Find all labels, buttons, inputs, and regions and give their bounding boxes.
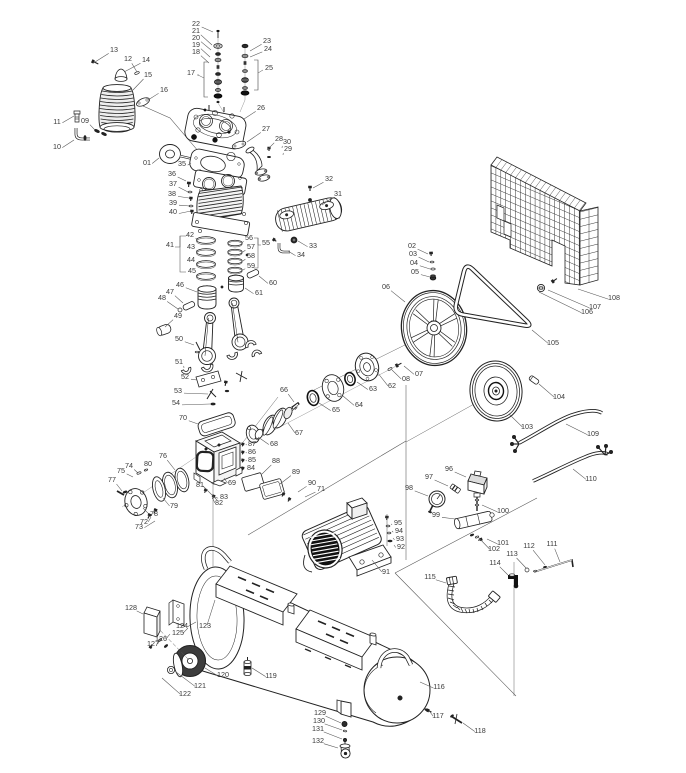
svg-text:116: 116 (433, 682, 444, 691)
svg-text:92: 92 (397, 542, 405, 551)
svg-text:36: 36 (168, 169, 176, 178)
svg-text:63: 63 (369, 384, 377, 393)
svg-text:54: 54 (172, 398, 180, 407)
svg-text:100: 100 (497, 506, 509, 515)
svg-text:56: 56 (245, 233, 253, 242)
svg-text:62: 62 (388, 381, 396, 390)
svg-text:16: 16 (160, 85, 168, 94)
svg-text:59: 59 (247, 261, 255, 270)
svg-text:08: 08 (402, 374, 410, 383)
svg-text:17: 17 (187, 68, 195, 77)
svg-text:06: 06 (382, 282, 390, 291)
svg-text:99: 99 (432, 510, 440, 519)
svg-text:07: 07 (415, 369, 423, 378)
svg-text:105: 105 (547, 338, 559, 347)
svg-text:119: 119 (265, 671, 276, 680)
svg-text:121: 121 (194, 681, 206, 690)
svg-text:127: 127 (147, 639, 159, 648)
svg-text:69: 69 (228, 478, 236, 487)
svg-text:18: 18 (192, 47, 200, 56)
svg-text:79: 79 (170, 501, 178, 510)
svg-text:114: 114 (489, 558, 500, 567)
svg-text:13: 13 (110, 45, 118, 54)
svg-text:90: 90 (308, 478, 316, 487)
svg-text:117: 117 (432, 711, 443, 720)
svg-text:102: 102 (488, 544, 500, 553)
svg-text:58: 58 (247, 251, 255, 260)
svg-text:76: 76 (159, 451, 167, 460)
svg-text:32: 32 (325, 174, 333, 183)
svg-text:47: 47 (166, 287, 174, 296)
svg-text:27: 27 (262, 124, 270, 133)
svg-text:53: 53 (174, 386, 182, 395)
svg-text:78: 78 (150, 509, 158, 518)
svg-text:108: 108 (608, 293, 620, 302)
svg-text:103: 103 (521, 422, 533, 431)
svg-text:28: 28 (275, 134, 283, 143)
svg-text:96: 96 (445, 464, 453, 473)
svg-text:39: 39 (169, 198, 177, 207)
svg-text:45: 45 (188, 266, 196, 275)
svg-text:24: 24 (264, 44, 272, 53)
svg-text:40: 40 (169, 207, 177, 216)
svg-text:82: 82 (215, 498, 223, 507)
svg-text:73: 73 (135, 522, 143, 531)
svg-text:89: 89 (292, 467, 300, 476)
svg-text:67: 67 (295, 428, 303, 437)
svg-text:131: 131 (312, 724, 324, 733)
svg-text:05: 05 (411, 267, 419, 276)
svg-text:38: 38 (168, 189, 176, 198)
svg-text:60: 60 (269, 278, 277, 287)
svg-text:10: 10 (53, 142, 61, 151)
svg-text:77: 77 (108, 475, 116, 484)
svg-text:26: 26 (257, 103, 265, 112)
svg-text:49: 49 (174, 311, 182, 320)
svg-text:115: 115 (424, 572, 435, 581)
svg-text:33: 33 (309, 241, 317, 250)
svg-text:57: 57 (247, 242, 255, 251)
svg-text:113: 113 (506, 549, 517, 558)
svg-text:71: 71 (317, 484, 325, 493)
svg-text:74: 74 (125, 461, 133, 470)
svg-text:120: 120 (217, 670, 229, 679)
svg-text:61: 61 (255, 288, 263, 297)
svg-text:80: 80 (144, 459, 152, 468)
svg-text:31: 31 (334, 189, 342, 198)
svg-text:106: 106 (581, 307, 593, 316)
svg-text:97: 97 (425, 472, 433, 481)
svg-text:55: 55 (262, 238, 270, 247)
svg-text:51: 51 (175, 357, 183, 366)
svg-text:88: 88 (272, 456, 280, 465)
svg-text:12: 12 (124, 54, 132, 63)
svg-text:66: 66 (280, 385, 288, 394)
svg-text:118: 118 (474, 726, 485, 735)
svg-text:35: 35 (178, 159, 186, 168)
svg-text:03: 03 (409, 249, 417, 258)
svg-text:104: 104 (553, 392, 565, 401)
svg-text:42: 42 (186, 230, 194, 239)
svg-text:43: 43 (187, 242, 195, 251)
svg-text:04: 04 (410, 258, 418, 267)
svg-text:125: 125 (172, 628, 184, 637)
svg-text:110: 110 (585, 474, 596, 483)
svg-text:84: 84 (247, 463, 255, 472)
svg-text:11: 11 (53, 117, 60, 126)
svg-text:14: 14 (142, 55, 150, 64)
svg-text:122: 122 (179, 689, 191, 698)
svg-text:52: 52 (181, 372, 189, 381)
svg-text:81: 81 (196, 480, 204, 489)
svg-text:112: 112 (523, 541, 534, 550)
svg-text:111: 111 (547, 539, 558, 548)
svg-text:15: 15 (144, 70, 152, 79)
svg-text:25: 25 (265, 63, 273, 72)
svg-text:09: 09 (81, 116, 89, 125)
svg-text:37: 37 (169, 179, 177, 188)
svg-text:01: 01 (143, 158, 151, 167)
svg-text:65: 65 (332, 405, 340, 414)
svg-text:132: 132 (312, 736, 324, 745)
svg-text:98: 98 (405, 483, 413, 492)
svg-text:109: 109 (587, 429, 599, 438)
svg-text:123: 123 (199, 621, 211, 630)
svg-text:34: 34 (297, 250, 305, 259)
svg-text:68: 68 (270, 439, 278, 448)
svg-text:48: 48 (158, 293, 166, 302)
svg-text:128: 128 (125, 603, 137, 612)
svg-text:41: 41 (166, 240, 174, 249)
svg-text:29: 29 (284, 144, 292, 153)
svg-text:91: 91 (382, 567, 390, 576)
svg-text:50: 50 (175, 334, 183, 343)
svg-text:44: 44 (187, 255, 195, 264)
svg-text:75: 75 (117, 466, 125, 475)
svg-text:46: 46 (176, 280, 184, 289)
svg-text:64: 64 (355, 400, 363, 409)
svg-text:70: 70 (179, 413, 187, 422)
